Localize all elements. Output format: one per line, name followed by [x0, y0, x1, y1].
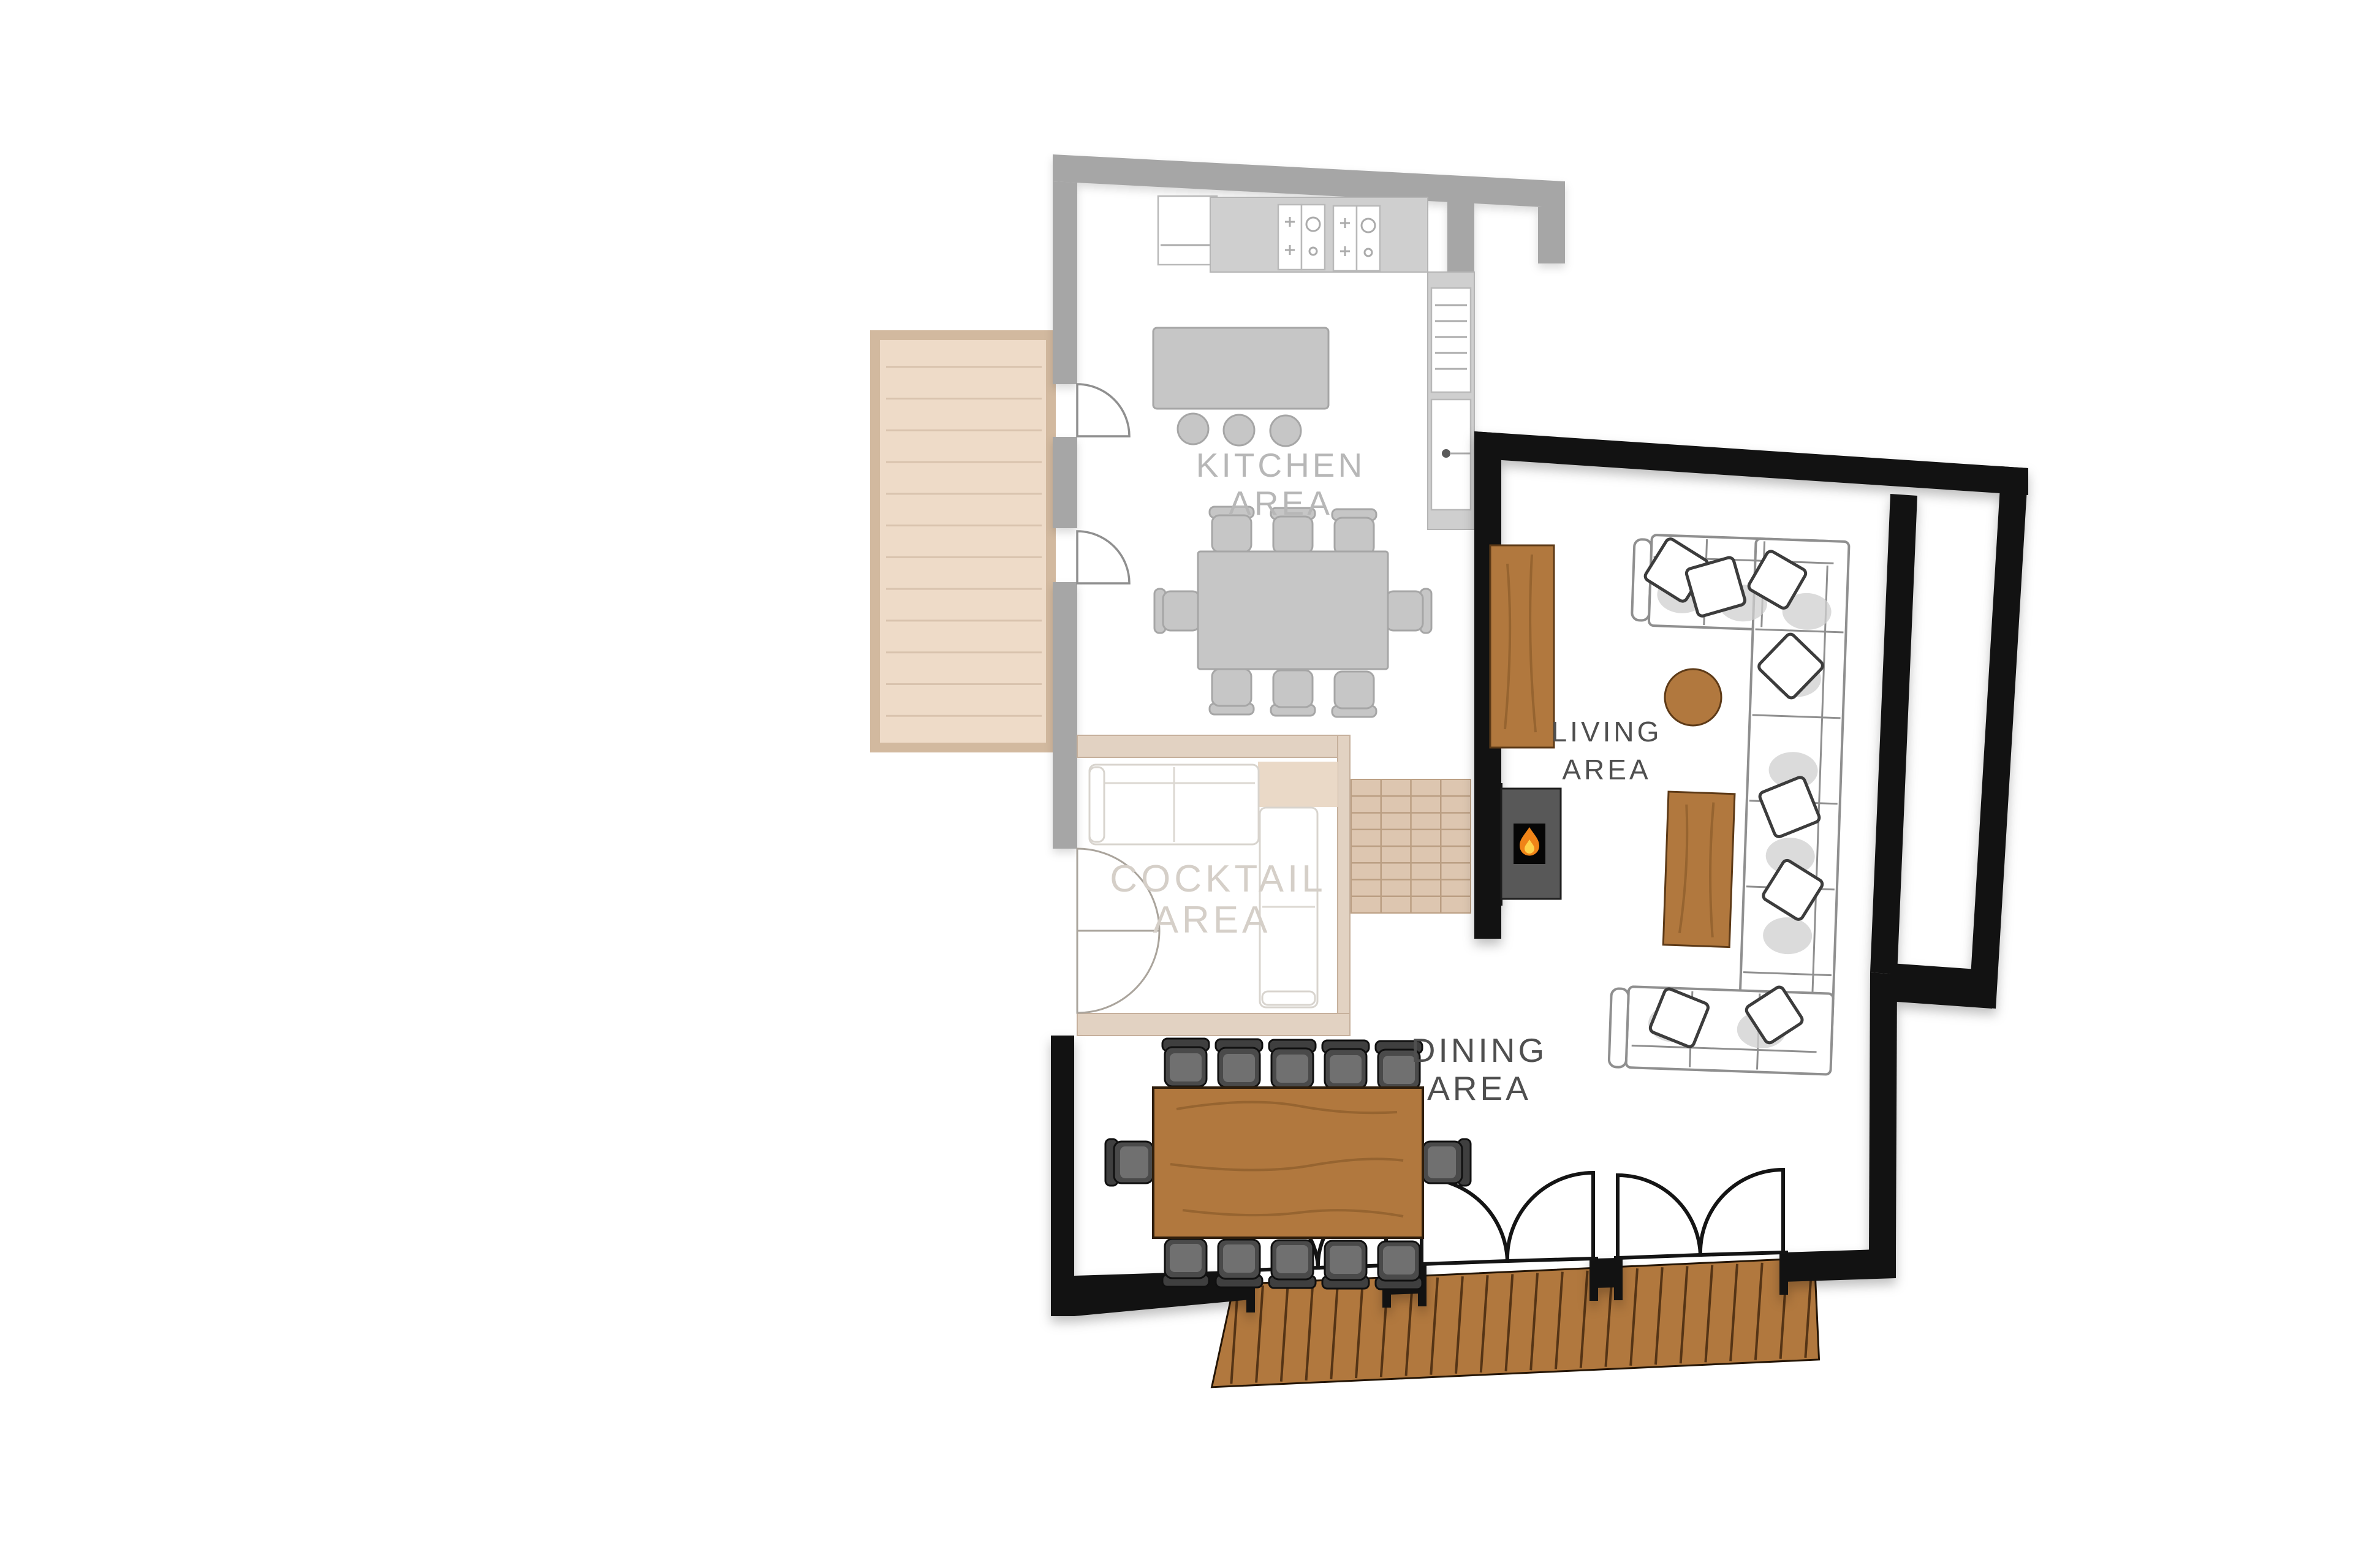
- island-stool: [1224, 415, 1254, 445]
- kitchen-area-label-line2: AREA: [1229, 484, 1333, 522]
- dining-chair: [1216, 1240, 1262, 1287]
- patio-door2-right-leaf: [1507, 1173, 1593, 1261]
- sofa-armrest: [1609, 988, 1629, 1067]
- sink-tap-icon: [1442, 449, 1450, 458]
- patio-door3-left-leaf: [1618, 1175, 1700, 1258]
- dining-chair: [1269, 1240, 1316, 1288]
- patio-door2-left-leaf: [1422, 1178, 1507, 1264]
- kitchen-chair: [1210, 669, 1254, 714]
- left-deck: [875, 335, 1051, 748]
- kitchen-wall-left-upper: [1053, 181, 1077, 384]
- island-stool: [1270, 415, 1301, 446]
- hob-knob-panel: [1333, 206, 1357, 271]
- dining-chair: [1162, 1239, 1209, 1287]
- kitchen-wall-left-middle: [1053, 437, 1077, 528]
- dining-area-label-line2: AREA: [1427, 1069, 1531, 1107]
- dining-wall-bottom-seg4: [1783, 1249, 1896, 1282]
- kitchen-chair: [1332, 672, 1376, 717]
- hob-burner-panel: [1357, 206, 1380, 271]
- kitchen-deck-door-upper: [1077, 384, 1129, 436]
- cocktail-area: COCKTAIL AREA: [1077, 735, 1350, 1036]
- left-deck-surface: [875, 335, 1051, 748]
- hob-knob-panel: [1278, 205, 1302, 270]
- cocktail-side-table: [1258, 762, 1338, 807]
- dining-table: [1153, 1088, 1423, 1238]
- dining-chair: [1322, 1040, 1369, 1088]
- balcony-wall-bottom: [1889, 963, 1995, 1009]
- kitchen-wall-top: [1053, 154, 1474, 203]
- kitchen-fridge: [1158, 196, 1217, 265]
- cocktail-door-lower-leaf: [1077, 931, 1159, 1013]
- kitchen-area-label-line1: KITCHEN: [1196, 446, 1365, 484]
- kitchen-chair: [1154, 589, 1200, 633]
- cocktail-wall-top: [1077, 735, 1350, 757]
- cocktail-area-label-line2: AREA: [1153, 899, 1271, 941]
- dining-chair: [1105, 1139, 1153, 1186]
- round-coffee-table: [1665, 669, 1721, 725]
- dining-chair: [1216, 1039, 1262, 1087]
- cocktail-area-label-line1: COCKTAIL: [1110, 858, 1326, 900]
- kitchen-appliance-vented: [1431, 288, 1471, 392]
- cocktail-sofa-armrest: [1089, 767, 1104, 842]
- dining-chair: [1376, 1241, 1422, 1289]
- living-area-label-line1: LIVING: [1552, 716, 1662, 748]
- living-cabinet-top: [1490, 545, 1554, 748]
- fireplace: [1501, 789, 1561, 899]
- dining-wall-left: [1051, 1036, 1074, 1316]
- balcony-wall-right: [1969, 466, 2028, 1009]
- hob-burner-panel: [1302, 205, 1325, 270]
- kitchen-wall-left-lower: [1053, 582, 1077, 849]
- kitchen-sink-unit: [1431, 400, 1471, 510]
- dining-chair: [1423, 1139, 1471, 1186]
- living-balcony-divider-wall: [1870, 494, 1917, 974]
- kitchen-chair: [1386, 589, 1431, 633]
- kitchen-island-stools: [1178, 414, 1301, 446]
- kitchen-wall-top-extension: [1474, 176, 1565, 208]
- dining-area-label-line1: DINING: [1411, 1031, 1548, 1069]
- living-wall-right: [1869, 972, 1897, 1252]
- cocktail-wall-right: [1338, 735, 1350, 1036]
- living-cabinet: [1490, 545, 1554, 748]
- rect-coffee-table-top: [1663, 792, 1735, 947]
- staircase: [1351, 779, 1471, 913]
- dining-table-top: [1153, 1088, 1423, 1238]
- kitchen-table: [1198, 551, 1388, 669]
- cocktail-sofa-armrest: [1262, 991, 1315, 1005]
- rect-coffee-table: [1663, 792, 1735, 947]
- floor-plan: KITCHEN AREA COCKTAIL AREA: [0, 0, 2353, 1568]
- kitchen-island: [1153, 328, 1328, 409]
- patio-door3-right-leaf: [1700, 1170, 1783, 1255]
- dining-chair: [1322, 1241, 1369, 1289]
- kitchen-deck-door-lower: [1077, 531, 1129, 583]
- cocktail-wall-bottom: [1077, 1013, 1350, 1036]
- fireplace-wall-plate: [1488, 783, 1502, 906]
- living-area-label-line2: AREA: [1562, 754, 1651, 786]
- kitchen-wall-corner-block: [1538, 207, 1565, 263]
- door-jamb: [1590, 1257, 1598, 1301]
- kitchen-chair: [1332, 509, 1376, 555]
- door-jamb: [1614, 1256, 1623, 1300]
- kitchen-chair: [1271, 670, 1315, 716]
- living-wall-top: [1474, 431, 2028, 495]
- door-jamb: [1779, 1251, 1788, 1295]
- dining-chair: [1162, 1039, 1209, 1086]
- dining-chair: [1269, 1040, 1316, 1088]
- island-stool: [1178, 414, 1208, 444]
